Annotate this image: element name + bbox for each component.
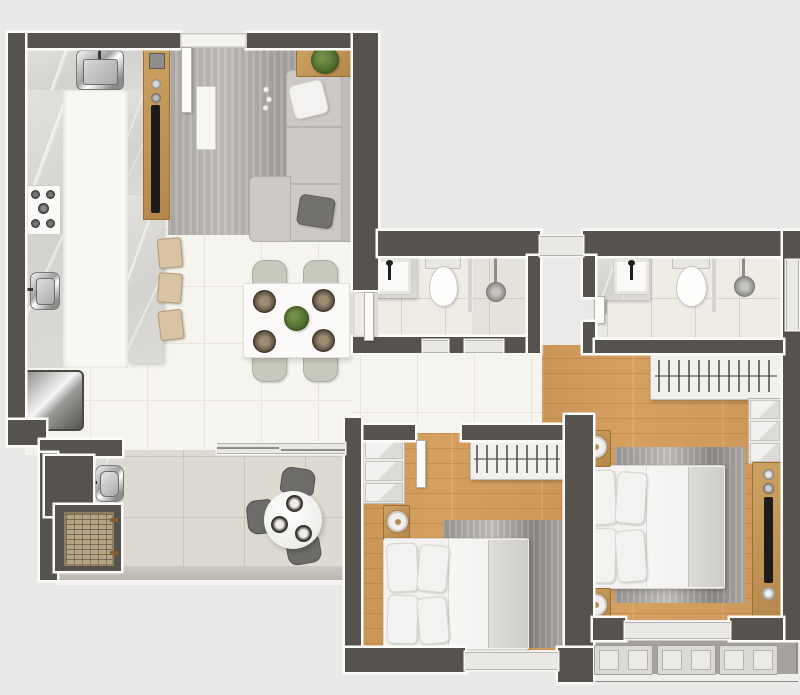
counter-stool <box>157 309 184 342</box>
knob-icon <box>762 587 775 600</box>
bedroom1-lamp <box>387 511 408 532</box>
speaker-icon <box>763 469 774 480</box>
place-setting <box>312 329 335 352</box>
wall-bedrooms-divider <box>565 415 593 655</box>
wall-bedroom1-bottom-left <box>345 648 465 672</box>
ac-condenser-unit <box>594 645 653 675</box>
sliding-door-track <box>217 447 279 449</box>
master-wardrobe-drawers <box>748 398 782 464</box>
speaker-icon <box>151 79 161 89</box>
bedroom1-throw-blanket <box>488 540 528 648</box>
grill-handle-icon <box>110 551 118 555</box>
bed-pillow <box>614 471 648 525</box>
vent-room-window <box>540 236 583 256</box>
wall-master-bottom-left <box>593 618 625 640</box>
bath1-vent-window <box>465 340 503 353</box>
hangers-icon <box>476 445 559 473</box>
kitchen-counter-right <box>128 90 143 195</box>
burner-icon <box>31 190 40 199</box>
master-clothes-rail <box>650 352 782 400</box>
intercom-icon <box>149 53 165 69</box>
bedroom1-clothes-rail <box>470 438 564 480</box>
cooktop <box>27 185 61 235</box>
master-bed <box>581 465 725 589</box>
bedroom1-door-leaf <box>416 440 426 488</box>
wall-master-bottom-right <box>730 618 783 640</box>
master-tv-icon <box>764 497 773 583</box>
wall-bedroom1-bottom-right <box>558 648 593 682</box>
bed-pillow <box>614 529 648 583</box>
bedroom1-wardrobe-drawers <box>363 438 405 504</box>
master-window <box>625 622 730 639</box>
bed-pillow <box>386 542 420 593</box>
kitchen-sink <box>76 50 124 90</box>
bedroom1-window <box>465 652 558 670</box>
bath1-vent-window <box>423 340 448 353</box>
bath1-toilet-bowl <box>429 266 458 307</box>
wall-left <box>8 33 25 433</box>
bath1-faucet-icon <box>386 260 393 266</box>
bath2-glass-partition <box>712 254 716 312</box>
prep-sink <box>30 272 60 310</box>
hangers-icon <box>658 360 775 392</box>
flower-sprig <box>262 84 272 112</box>
wall-bath-top-left <box>378 231 540 256</box>
laundry-sink <box>95 465 124 502</box>
balcony-place-setting <box>271 516 288 533</box>
bed-pillow <box>416 596 450 645</box>
wall-bedroom1-left <box>345 418 361 672</box>
master-throw-blanket <box>688 467 724 587</box>
media-bench <box>196 86 216 150</box>
place-setting <box>253 290 276 313</box>
laundry-sink-basin <box>100 471 119 497</box>
wall-bath-top-right <box>583 231 795 256</box>
burner-icon <box>46 190 55 199</box>
ac-condenser-unit <box>657 645 716 675</box>
place-setting <box>253 330 276 353</box>
burner-icon <box>31 219 40 228</box>
bath2-shower-head-icon <box>734 276 755 297</box>
balcony-place-setting <box>286 495 303 512</box>
wall-bath2-left-lower <box>583 322 595 353</box>
wall-top-left <box>8 33 180 48</box>
wall-bedroom1-top-right <box>462 425 565 440</box>
bath1-door-leaf2 <box>364 292 374 341</box>
tv-icon <box>151 105 160 213</box>
place-setting <box>312 289 335 312</box>
burner-icon <box>38 203 49 214</box>
bath1-shower-head-icon <box>486 282 506 302</box>
sofa-pillow-dark <box>296 193 336 229</box>
master-tv-panel <box>752 462 785 624</box>
entrance-threshold <box>180 33 247 48</box>
burner-icon <box>46 219 55 228</box>
counter-stool <box>157 272 183 304</box>
grill <box>64 512 114 566</box>
side-table-plant <box>311 46 339 74</box>
prep-sink-basin <box>36 278 55 305</box>
ac-ledge-edge <box>578 674 798 681</box>
bath2-toilet-bowl <box>676 266 707 307</box>
sofa-chaise <box>249 176 291 242</box>
balcony-sliding-door <box>217 443 345 454</box>
balcony-parapet-rail <box>55 580 347 585</box>
wall-bath2-left-upper <box>583 256 595 297</box>
bed-pillow <box>416 544 450 593</box>
entrance-door-leaf <box>181 47 192 113</box>
table-centerpiece-plant <box>284 306 309 331</box>
tv-panel <box>143 40 170 220</box>
grill-handle-icon <box>110 518 118 522</box>
speaker-icon <box>763 483 774 494</box>
speaker-icon <box>151 93 161 103</box>
kitchen-sink-basin <box>83 59 118 85</box>
bath2-faucet-icon <box>628 260 635 266</box>
kitchen-aisle <box>63 90 128 368</box>
wall-living-right <box>353 33 378 290</box>
bedroom1-bed <box>383 538 529 650</box>
sliding-door-track <box>281 449 345 451</box>
counter-stool <box>157 237 184 269</box>
wall-bath1-shaft <box>528 256 540 353</box>
wall-bedroom1-top-left <box>361 425 415 440</box>
bath2-sink <box>613 258 650 295</box>
balcony-place-setting <box>295 525 312 542</box>
bath2-door-leaf <box>594 296 605 324</box>
bed-pillow <box>386 594 419 644</box>
ac-condenser-unit <box>719 645 778 675</box>
vent-room-floor <box>540 254 583 345</box>
wall-bath2-bottom <box>595 340 783 353</box>
bath2-window <box>786 260 799 330</box>
bath1-glass-partition <box>468 254 472 312</box>
floor-plan <box>0 0 800 695</box>
